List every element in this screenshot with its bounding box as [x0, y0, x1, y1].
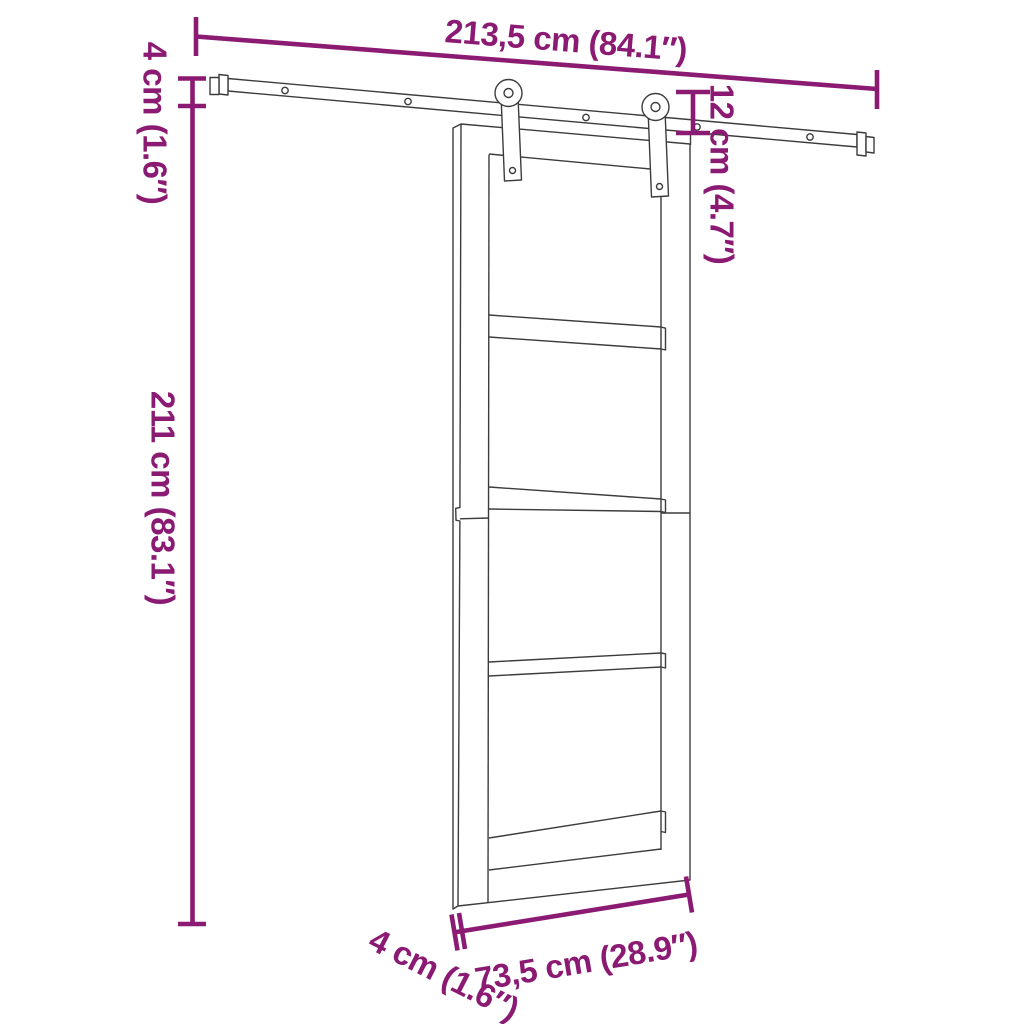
dim-door-thickness-tick-a [452, 915, 458, 951]
door-seam-left [460, 518, 489, 519]
rail-end-tip-right [866, 137, 874, 154]
hanger-bolt-right [657, 184, 663, 190]
dim-door-thickness-tick-b [459, 913, 465, 949]
dimension-diagram: 213,5 cm (84.1″) 4 cm (1.6″) 211 cm (83.… [0, 0, 1024, 1024]
door-left-stile-line [488, 155, 489, 903]
dim-rail-height-label: 4 cm (1.6″) [139, 42, 172, 205]
dim-door-width-tick-right [686, 877, 692, 913]
rail-end-tip-left [210, 78, 219, 95]
dim-door-height-label: 211 cm (83.1″) [147, 391, 180, 605]
rail-end-cap-right [857, 132, 866, 156]
dim-hanger-drop-label: 12 cm (4.7″) [706, 84, 739, 264]
rail-screw-hole [405, 98, 411, 104]
door-figure [453, 124, 691, 909]
rail-screw-hole [583, 114, 589, 120]
rail-screw-hole [282, 87, 288, 93]
rail-screw-hole [807, 134, 813, 140]
hanger-bolt-left [510, 168, 516, 174]
roller-axle-left [504, 89, 513, 98]
rail-end-cap-left [219, 75, 228, 96]
roller-axle-right [651, 103, 660, 112]
